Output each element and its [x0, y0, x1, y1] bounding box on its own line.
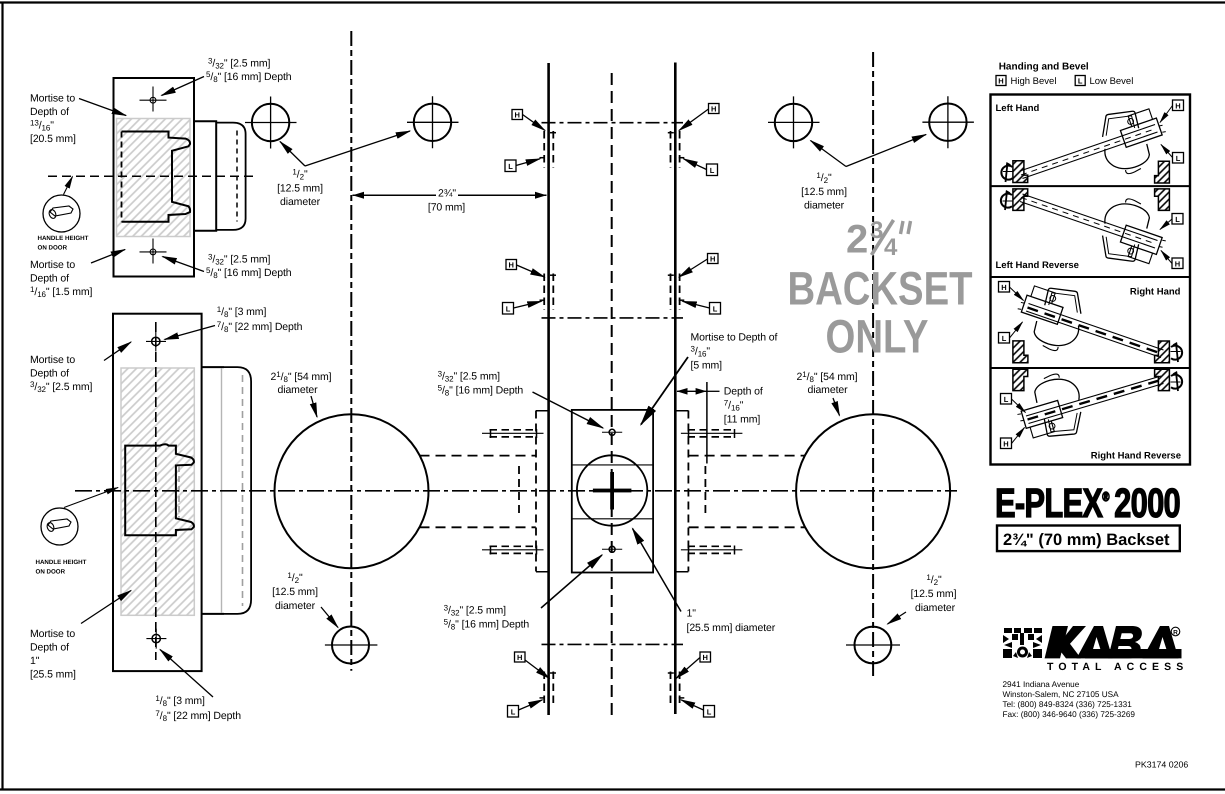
svg-text:1": 1" [30, 655, 40, 667]
svg-text:Left Hand: Left Hand [996, 103, 1040, 114]
svg-text:L: L [707, 707, 712, 716]
svg-text:Mortise to Depth of: Mortise to Depth of [691, 332, 778, 344]
svg-text:HANDLE HEIGHT: HANDLE HEIGHT [36, 559, 87, 566]
svg-text:BACKSET: BACKSET [788, 262, 973, 315]
svg-text:Mortise to: Mortise to [30, 354, 75, 366]
svg-text:PK3174 0206: PK3174 0206 [1135, 760, 1188, 770]
svg-text:H: H [702, 653, 707, 662]
svg-text:Mortise to: Mortise to [30, 93, 75, 105]
svg-text:H: H [508, 260, 513, 269]
svg-text:Left Hand Reverse: Left Hand Reverse [996, 260, 1079, 271]
svg-text:Mortise to: Mortise to [30, 259, 75, 271]
svg-text:H: H [1175, 101, 1180, 110]
svg-text:High Bevel: High Bevel [1011, 76, 1057, 87]
svg-text:L: L [710, 166, 715, 175]
svg-text:L: L [1002, 334, 1007, 343]
svg-text:5/8" [16 mm] Depth: 5/8" [16 mm] Depth [438, 383, 524, 397]
svg-text:H: H [514, 110, 519, 119]
svg-text:7/8" [22 mm] Depth: 7/8" [22 mm] Depth [217, 320, 303, 334]
svg-text:H: H [711, 104, 716, 113]
svg-text:Low Bevel: Low Bevel [1090, 76, 1134, 87]
svg-text:L: L [508, 162, 513, 171]
svg-text:H: H [1175, 259, 1180, 268]
svg-text:Winston-Salem, NC 27105 USA: Winston-Salem, NC 27105 USA [1003, 690, 1120, 699]
svg-text:TOTAL ACCESS: TOTAL ACCESS [1047, 661, 1188, 673]
svg-text:[12.5 mm]: [12.5 mm] [277, 183, 323, 195]
svg-text:2941 Indiana Avenue: 2941 Indiana Avenue [1003, 680, 1080, 689]
svg-text:Mortise to: Mortise to [30, 628, 75, 640]
svg-text:[12.5 mm]: [12.5 mm] [801, 186, 847, 198]
svg-text:diameter: diameter [915, 602, 956, 614]
svg-text:Depth of: Depth of [30, 273, 69, 285]
svg-text:5/8" [16 mm] Depth: 5/8" [16 mm] Depth [444, 617, 530, 631]
svg-text:H: H [517, 653, 522, 662]
svg-text:[70 mm]: [70 mm] [428, 202, 465, 214]
svg-text:L: L [1004, 395, 1009, 404]
svg-text:2¾" (70 mm) Backset: 2¾" (70 mm) Backset [1003, 531, 1170, 549]
svg-text:L: L [1078, 76, 1083, 85]
svg-text:21/8" [54 mm]: 21/8" [54 mm] [797, 370, 858, 384]
svg-text:diameter: diameter [807, 384, 848, 396]
svg-text:Depth of: Depth of [30, 642, 69, 654]
svg-text:diameter: diameter [280, 196, 321, 208]
svg-text:ONLY: ONLY [826, 310, 929, 363]
svg-text:4: 4 [884, 234, 898, 261]
svg-text:5/8" [16 mm] Depth: 5/8" [16 mm] Depth [206, 266, 292, 280]
svg-text:Right Hand: Right Hand [1130, 287, 1181, 298]
svg-text:Tel: (800) 849-8324 (336) 725: Tel: (800) 849-8324 (336) 725-1331 [1003, 700, 1133, 709]
svg-text:[11 mm]: [11 mm] [724, 414, 761, 426]
svg-text:[12.5 mm]: [12.5 mm] [911, 588, 957, 600]
svg-text:H: H [1001, 283, 1006, 292]
svg-text:Fax: (800) 346-9640 (336) 725: Fax: (800) 346-9640 (336) 725-3269 [1003, 710, 1136, 719]
svg-text:L: L [506, 304, 511, 313]
svg-text:ON DOOR: ON DOOR [36, 569, 66, 576]
svg-text:1": 1" [687, 608, 697, 620]
svg-text:H: H [1003, 439, 1008, 448]
svg-text:Depth of: Depth of [30, 106, 69, 118]
svg-text:5/8" [16 mm] Depth: 5/8" [16 mm] Depth [206, 70, 292, 84]
svg-text:[20.5 mm]: [20.5 mm] [30, 133, 76, 145]
svg-text:Handing and Bevel: Handing and Bevel [999, 62, 1089, 73]
svg-text:ON DOOR: ON DOOR [38, 245, 68, 252]
svg-text:diameter: diameter [275, 600, 316, 612]
svg-text:7/8" [22 mm] Depth: 7/8" [22 mm] Depth [155, 709, 241, 723]
svg-text:L: L [1176, 154, 1181, 163]
svg-text:diameter: diameter [277, 384, 318, 396]
svg-text:Depth of: Depth of [30, 368, 69, 380]
svg-text:L: L [511, 707, 516, 716]
svg-text:[12.5 mm]: [12.5 mm] [272, 586, 318, 598]
svg-text:HANDLE HEIGHT: HANDLE HEIGHT [38, 235, 89, 242]
svg-text:H: H [710, 254, 715, 263]
svg-text:21/8" [54 mm]: 21/8" [54 mm] [271, 370, 332, 384]
svg-text:H: H [998, 76, 1003, 85]
svg-text:2: 2 [846, 218, 868, 262]
svg-text:E-PLEX® 2000: E-PLEX® 2000 [995, 480, 1180, 526]
svg-text:Depth of: Depth of [724, 386, 763, 398]
svg-text:L: L [713, 304, 718, 313]
svg-text:2¾": 2¾" [438, 188, 456, 200]
svg-text:[25.5 mm]: [25.5 mm] [30, 669, 76, 681]
svg-text:Right Hand Reverse: Right Hand Reverse [1091, 451, 1181, 462]
svg-text:[25.5 mm] diameter: [25.5 mm] diameter [687, 622, 776, 634]
svg-text:[5 mm]: [5 mm] [691, 360, 723, 372]
svg-text:L: L [1175, 215, 1180, 224]
svg-text:diameter: diameter [804, 200, 845, 212]
svg-text:R: R [1173, 629, 1178, 636]
